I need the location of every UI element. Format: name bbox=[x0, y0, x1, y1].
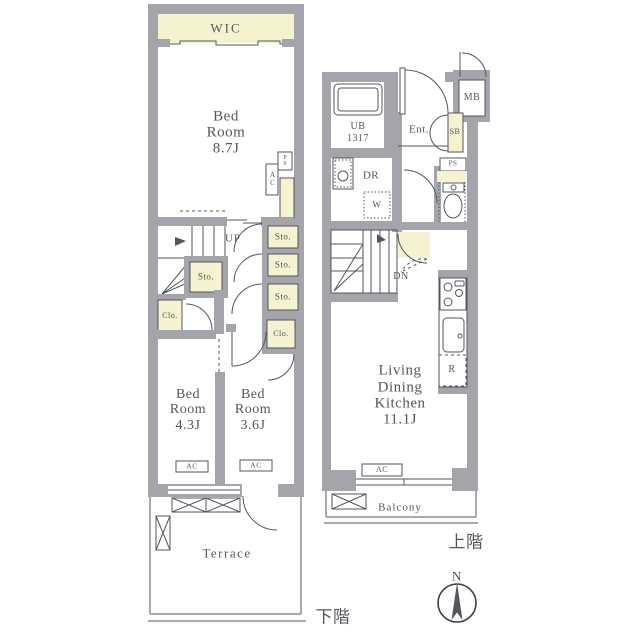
toilet bbox=[437, 171, 466, 222]
terrace-label: Terrace bbox=[202, 547, 251, 560]
washbasin bbox=[333, 158, 353, 189]
ps-label-upper: PS bbox=[449, 161, 458, 168]
upper-floor-plan bbox=[322, 52, 490, 523]
ldk-label2: Dining bbox=[378, 381, 423, 396]
bedroom3-label: Bed bbox=[241, 388, 265, 402]
ac-bed3-label: AC bbox=[250, 461, 261, 469]
ps-label-lower: PS bbox=[282, 155, 288, 167]
closet-right-label: Clo. bbox=[273, 330, 289, 338]
storage-mid-label: Sto. bbox=[198, 273, 214, 282]
storage-2-label: Sto. bbox=[275, 261, 291, 270]
washer-label: W bbox=[373, 201, 382, 210]
shoe-box-label: SB bbox=[450, 128, 461, 136]
ac-ldk-label: AC bbox=[376, 466, 388, 474]
bathtub bbox=[334, 84, 382, 115]
ldk-size: 11.1J bbox=[383, 413, 417, 428]
ldk-label1: Living bbox=[379, 364, 422, 379]
floorplan-canvas: WIC Bed Room 8.7J PS AC UP Sto. Sto. Sto… bbox=[0, 0, 640, 640]
upper-floor-caption: 上階 bbox=[449, 534, 484, 551]
closet-left-label: Clo. bbox=[162, 312, 178, 320]
dn-label: DN bbox=[393, 272, 408, 282]
meter-box-label: MB bbox=[464, 93, 481, 103]
bedroom2-size: 4.3J bbox=[176, 419, 201, 433]
compass-icon bbox=[438, 583, 476, 622]
stairs-down bbox=[331, 230, 397, 293]
storage-3-label: Sto. bbox=[275, 293, 291, 302]
floorplan-svg bbox=[0, 0, 640, 640]
dressing-room-label: DR bbox=[363, 171, 379, 182]
bedroom3-size: 3.6J bbox=[241, 419, 266, 433]
bedroom-main-size: 8.7J bbox=[213, 142, 240, 157]
unit-bath-size: 1317 bbox=[347, 134, 369, 144]
up-label: UP bbox=[225, 234, 241, 245]
compass-north-label: N bbox=[452, 570, 462, 583]
unit-bath-label: UB bbox=[351, 122, 366, 132]
ldk-label3: Kitchen bbox=[375, 397, 426, 412]
bedroom-main-label2: Room bbox=[207, 126, 246, 141]
entrance-label: Ent. bbox=[409, 125, 429, 136]
storage-1-label: Sto. bbox=[275, 233, 291, 242]
balcony-label: Balcony bbox=[378, 503, 422, 514]
bedroom3-label2: Room bbox=[235, 403, 271, 417]
ac-wall-label: AC bbox=[269, 171, 276, 187]
lower-floor-caption: 下階 bbox=[316, 609, 351, 626]
refrigerator-label: R bbox=[448, 365, 455, 375]
wic-label: WIC bbox=[210, 22, 241, 35]
bedroom-main-label: Bed bbox=[213, 110, 239, 125]
ac-bed2-label: AC bbox=[186, 462, 197, 470]
bedroom2-label: Bed bbox=[176, 388, 200, 402]
entrance-door bbox=[400, 68, 405, 114]
ac-outdoor-units bbox=[156, 498, 240, 550]
bedroom2-label2: Room bbox=[170, 403, 206, 417]
